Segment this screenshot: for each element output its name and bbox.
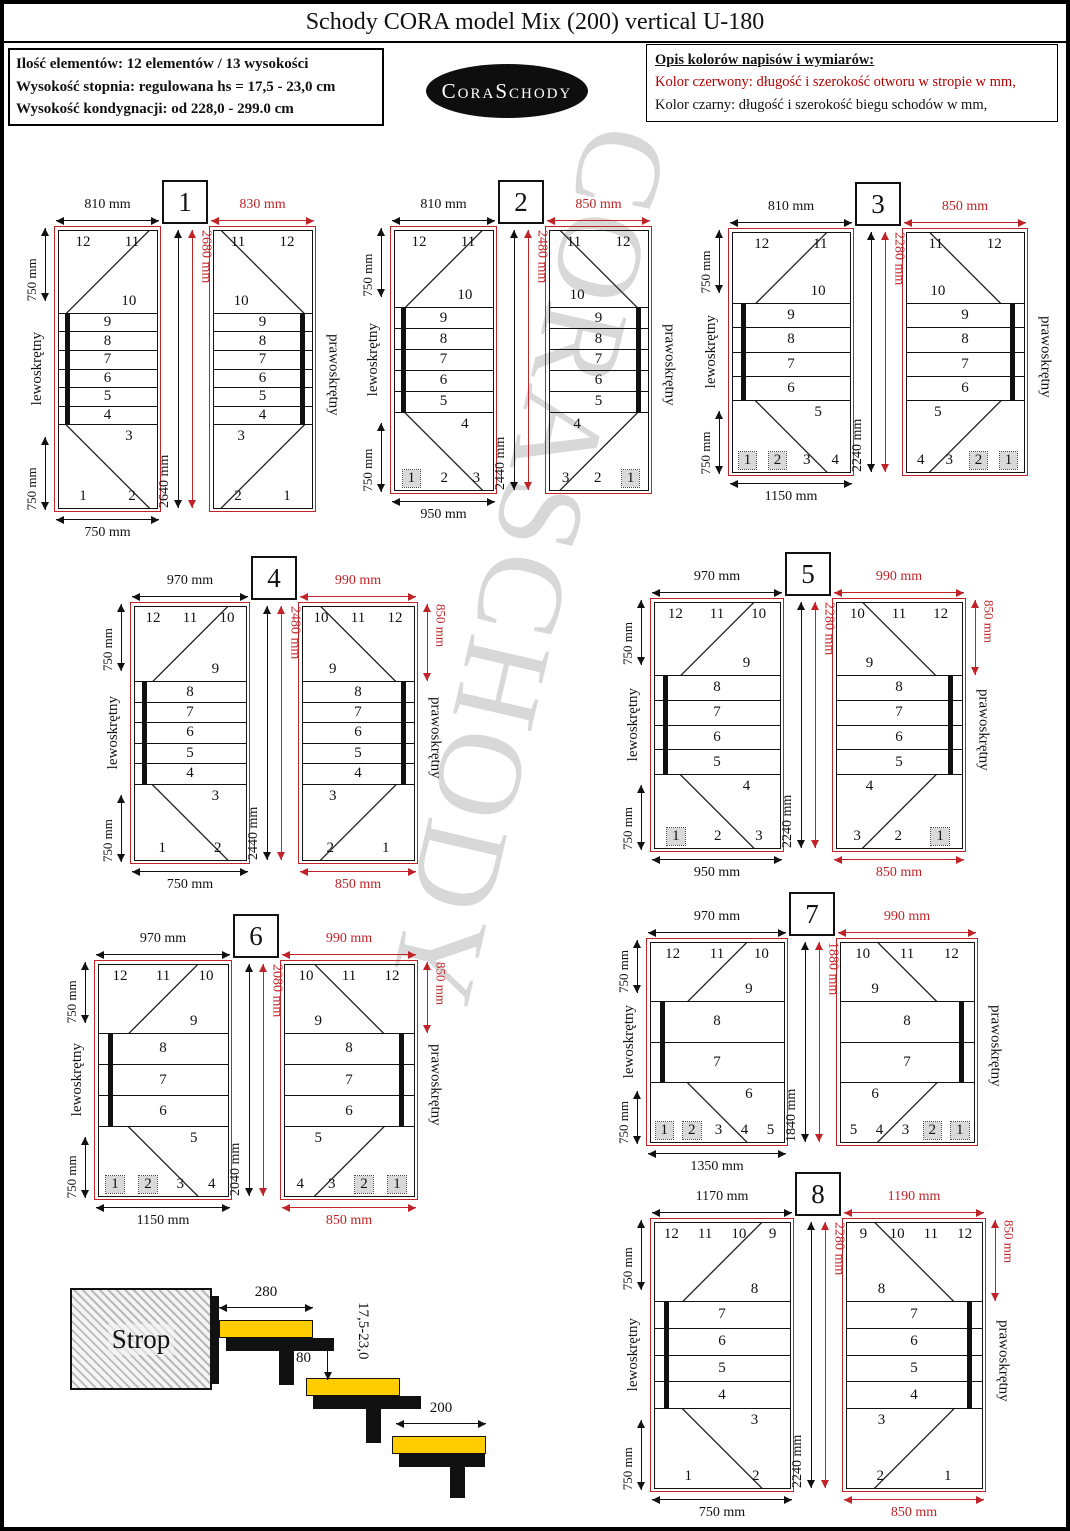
- dim-opening-width-red: 850 mm: [545, 180, 652, 226]
- step-cell: 4: [827, 452, 843, 469]
- dim-flight-length-label: 2440 mm: [246, 606, 262, 860]
- winder-zone-top: 1211109: [135, 607, 246, 683]
- winder-top-sub: 10: [550, 287, 648, 304]
- label-lewoskretny: lewoskrętny: [621, 1005, 638, 1078]
- right-edge-labels: 850 mm prawoskrętny: [418, 602, 452, 864]
- plan-right-flight: 1011129 87 654321: [840, 942, 975, 1143]
- step-cell: 2: [683, 1122, 701, 1139]
- dim-riser-range-label: 17,5-23,0: [354, 1302, 371, 1360]
- winder-bottom-sub: 5: [907, 404, 1024, 421]
- step-cell: 12: [986, 236, 1002, 253]
- dim-opening-width-label: 990 mm: [282, 931, 416, 949]
- winder-top-numbers: 101112: [837, 606, 962, 623]
- step-cell: 4: [135, 763, 246, 783]
- dim-850-side-arrow: [422, 604, 433, 681]
- dim-750-top-arrow: [636, 600, 647, 665]
- dim-opening-length-arrow: [880, 232, 891, 472]
- stair-variant-panel: 970 mm 6 990 mm 750 mm lewoskrętny 750 m…: [60, 914, 452, 1236]
- step-cell: 10: [849, 606, 865, 623]
- plan-right-flight: 111210 987654 321: [213, 230, 313, 509]
- step-cell: 7: [59, 350, 157, 369]
- dim-flight-width-arrow: [132, 591, 248, 602]
- dim-flight-length-black: 2240 mm: [790, 1222, 817, 1488]
- winder-top-sub: 9: [135, 661, 246, 678]
- dim-opening-width-red: 990 mm: [280, 914, 418, 960]
- winder-bottom-numbers: 123: [655, 828, 780, 845]
- center-dimensions: 2640 mm 2680 mm: [161, 226, 209, 512]
- winder-bottom-numbers: 12: [655, 1468, 790, 1485]
- dim-opening-length-arrow: [820, 1222, 831, 1488]
- dim-750-bottom: 750 mm: [616, 1091, 643, 1144]
- dim-opening-width-red: 830 mm: [209, 180, 316, 226]
- step-cell: 5: [846, 1122, 862, 1139]
- step-cell: 8: [303, 682, 414, 701]
- step-cell: 10: [751, 606, 767, 623]
- dim-750-top-label: 750 mm: [698, 230, 714, 293]
- winder-zone-top: 1011129: [841, 943, 974, 1003]
- winder-top-numbers: 101112: [841, 946, 974, 963]
- step-cell: 9: [739, 655, 755, 672]
- winder-zone-bottom: 654321: [841, 1082, 974, 1142]
- step-cell: 5: [59, 387, 157, 406]
- winder-zone-top: 12111098: [655, 1223, 790, 1303]
- dim-850-side-red: 850 mm: [422, 962, 449, 1033]
- straight-run: 98765: [550, 308, 648, 412]
- plan-right-turning: 1011129 87 654321: [836, 938, 978, 1146]
- dim-flight-width-arrow: [652, 587, 782, 598]
- step-cell: 8: [550, 328, 648, 349]
- step-cell: 2: [769, 452, 787, 469]
- dim-opening-width-arrow: [844, 1207, 984, 1218]
- plan-left-turning: 12111098 7654 312: [650, 1218, 794, 1492]
- step-cell: 9: [59, 314, 157, 332]
- dim-bottom-width-label: 1150 mm: [730, 489, 852, 507]
- dim-bottom-width-black: 1150 mm: [94, 1200, 232, 1236]
- step-cell: 6: [285, 1095, 414, 1126]
- dim-750-bottom: 750 mm: [620, 785, 647, 850]
- dim-bottom-width-black: 1150 mm: [728, 476, 854, 512]
- dim-opening-width-red: 990 mm: [832, 552, 966, 598]
- dim-850-side-label: 850 mm: [433, 604, 449, 681]
- variant-number: 6: [233, 914, 279, 958]
- winder-bottom-numbers: 12: [59, 488, 157, 505]
- winder-top-numbers: 1112: [550, 234, 648, 251]
- straight-run: 876: [285, 1034, 414, 1126]
- dim-750-top-label: 750 mm: [100, 604, 116, 671]
- dim-850-side-label: 850 mm: [433, 962, 449, 1033]
- dim-opening-width-arrow: [834, 587, 964, 598]
- step-cell: 2: [924, 1122, 942, 1139]
- step-cell: 8: [837, 676, 962, 700]
- step-cell: 10: [753, 946, 769, 963]
- right-edge-labels: 850 mm prawoskrętny: [966, 598, 1000, 852]
- step-cell: 5: [847, 1355, 982, 1382]
- dim-bottom-width-black: 750 mm: [54, 512, 161, 548]
- winder-top-sub: 10: [214, 293, 312, 310]
- dim-flight-length-label: 2040 mm: [228, 964, 244, 1196]
- dim-80-line: [322, 1342, 333, 1380]
- dim-opening-width-red: 1190 mm: [842, 1172, 986, 1218]
- dim-bottom-width-black: 950 mm: [650, 852, 784, 888]
- dim-bottom-width-red: 850 mm: [842, 1492, 986, 1528]
- center-dimensions: 2240 mm 2280 mm: [794, 1218, 842, 1492]
- dim-750-top-arrow: [376, 228, 387, 297]
- step-cell: 8: [907, 327, 1024, 351]
- dim-750-bottom-label: 750 mm: [620, 1420, 636, 1490]
- dim-flight-width-label: 810 mm: [56, 197, 159, 215]
- dim-750-bottom: 750 mm: [64, 1137, 91, 1198]
- dim-flight-width-black: 970 mm: [646, 892, 788, 938]
- tread-2: [306, 1378, 400, 1396]
- dim-flight-length-black: 2640 mm: [157, 230, 184, 508]
- dim-flight-width-black: 810 mm: [54, 180, 161, 226]
- dim-bottom-red-label: 850 mm: [300, 877, 416, 895]
- dim-flight-length-black: 2240 mm: [850, 232, 877, 472]
- plan-right-flight: 1011129 876 54321: [284, 964, 415, 1197]
- step-cell: 12: [665, 946, 681, 963]
- plan-left-turning: 121110 9876 51234: [728, 228, 854, 476]
- dim-850-side-label: 850 mm: [1001, 1220, 1017, 1301]
- plan-left-flight: 12111098 7654 312: [654, 1222, 791, 1489]
- left-edge-labels: 750 mm lewoskrętny 750 mm: [616, 598, 650, 852]
- winder-zone-bottom: 612345: [651, 1082, 784, 1142]
- winder-top-numbers: 121110: [655, 606, 780, 623]
- plan-right-turning: 1011129 8765 4321: [832, 598, 966, 852]
- dim-bottom-width-black: 950 mm: [390, 494, 497, 530]
- step-cell: 12: [279, 234, 295, 251]
- label-prawoskretny: prawoskrętny: [427, 697, 444, 779]
- step-cell: 3: [468, 470, 484, 487]
- left-edge-labels: 750 mm lewoskrętny 750 mm: [96, 602, 130, 864]
- plan-right-turning: 111210 987654 321: [209, 226, 316, 512]
- step-cell: 10: [930, 283, 946, 300]
- step-cell: 8: [651, 1002, 784, 1041]
- dim-bottom-width-arrow: [652, 854, 782, 865]
- dim-bottom-red-arrow: [834, 854, 964, 865]
- dim-750-bottom-label: 750 mm: [616, 1091, 632, 1144]
- plan-right-turning: 1011129 876 54321: [280, 960, 418, 1200]
- winder-bottom-sub: 3: [847, 1412, 982, 1429]
- dim-opening-width-arrow: [904, 217, 1026, 228]
- step-cell: 6: [733, 376, 850, 400]
- step-cell: 5: [655, 1355, 790, 1382]
- straight-run: 987654: [59, 314, 157, 425]
- step-cell: 3: [941, 452, 957, 469]
- winder-top-numbers: 101112: [303, 610, 414, 627]
- dim-bottom-width-arrow: [56, 514, 159, 525]
- winder-bottom-numbers: 4321: [907, 452, 1024, 469]
- step-cell: 1: [154, 840, 170, 857]
- plan-left-flight: 121110 9876 51234: [732, 232, 851, 473]
- dim-750-top: 750 mm: [360, 228, 387, 297]
- winder-top-numbers: 1112: [214, 234, 312, 251]
- step-cell: 9: [733, 304, 850, 327]
- right-edge-labels: prawoskrętny: [978, 938, 1012, 1146]
- dim-850-side-red: 850 mm: [970, 600, 997, 675]
- winder-bottom-numbers: 21: [303, 840, 414, 857]
- step-cell: 1: [931, 828, 949, 845]
- dim-flight-length-arrow: [509, 230, 520, 490]
- dim-opening-width-arrow: [300, 591, 416, 602]
- title-divider: [4, 41, 1066, 43]
- winder-zone-bottom: 54321: [907, 400, 1024, 472]
- dim-flight-width-label: 970 mm: [132, 573, 248, 591]
- dim-750-top-arrow: [632, 940, 643, 993]
- step-cell: 9: [214, 314, 312, 332]
- step-cell: 6: [214, 369, 312, 388]
- step-cell: 5: [186, 1130, 202, 1147]
- stair-variant-panel: 970 mm 5 990 mm 750 mm lewoskrętny 750 m…: [616, 552, 1000, 888]
- step-cell: 8: [135, 682, 246, 701]
- step-cell: 1: [951, 1122, 969, 1139]
- winder-zone-bottom: 4321: [550, 412, 648, 490]
- stair-variant-panel: 970 mm 4 990 mm 750 mm lewoskrętny 750 m…: [96, 556, 452, 900]
- cora-schody-logo: CoraSchody: [426, 64, 588, 118]
- center-dimensions: 2040 mm 2080 mm: [232, 960, 280, 1200]
- step-cell: 3: [898, 1122, 914, 1139]
- dim-opening-length-arrow: [810, 602, 821, 848]
- winder-bottom-numbers: 54321: [841, 1122, 974, 1139]
- dim-750-bottom-arrow: [636, 1420, 647, 1490]
- plan-left-flight: 1211109 876 51234: [98, 964, 229, 1197]
- dim-flight-width-arrow: [730, 217, 852, 228]
- winder-zone-top: 1211109: [651, 943, 784, 1003]
- winder-top-numbers: 1211109: [655, 1226, 790, 1243]
- step-cell: 10: [569, 287, 585, 304]
- plan-right-turning: 1011129 87654 321: [298, 602, 418, 864]
- right-edge-labels: prawoskrętny: [1028, 228, 1062, 476]
- dim-tread-depth-200: 200: [396, 1400, 486, 1429]
- step-cell: 10: [219, 610, 235, 627]
- plan-left-flight: 121110 987654 312: [58, 230, 158, 509]
- step-cell: 4: [913, 452, 929, 469]
- step-cell: 11: [341, 968, 357, 985]
- legend-heading: Opis kolorów napisów i wymiarów:: [655, 49, 1049, 71]
- legend-red-meaning: Kolor czerwony: długość i szerokość otwo…: [655, 71, 1049, 93]
- dim-opening-width-arrow: [547, 215, 650, 226]
- dim-flight-width-black: 810 mm: [728, 182, 854, 228]
- winder-zone-top: 121110: [395, 231, 493, 309]
- step-cell: 3: [711, 1122, 727, 1139]
- dim-flight-length-arrow: [806, 1222, 817, 1488]
- step-cell: 9: [862, 655, 878, 672]
- dim-opening-width-label: 990 mm: [300, 573, 416, 591]
- step-cell: 2: [322, 840, 338, 857]
- sheet: Schody CORA model Mix (200) vertical U-1…: [0, 0, 1070, 1531]
- winder-bottom-numbers: 4321: [285, 1176, 414, 1193]
- winder-zone-bottom: 312: [59, 424, 157, 507]
- winder-top-sub: 10: [733, 283, 850, 300]
- dim-opening-length-arrow: [276, 606, 287, 860]
- step-cell: 7: [733, 352, 850, 376]
- step-cell: 10: [233, 293, 249, 310]
- step-cell: 11: [891, 606, 907, 623]
- logo-text: CoraSchody: [442, 79, 573, 104]
- winder-top-sub: 9: [99, 1013, 228, 1030]
- label-prawoskretny: prawoskrętny: [1037, 316, 1054, 398]
- dim-flight-length-arrow: [800, 942, 811, 1142]
- plan-left-turning: 1211109 8765 4123: [650, 598, 784, 852]
- winder-top-numbers: 121110: [99, 968, 228, 985]
- winder-top-numbers: 121110: [651, 946, 784, 963]
- dim-750-top: 750 mm: [100, 604, 127, 671]
- step-cell: 6: [135, 722, 246, 742]
- legend-box: Opis kolorów napisów i wymiarów: Kolor c…: [646, 44, 1058, 122]
- step-cell: 7: [847, 1302, 982, 1328]
- riser-post-1: [279, 1338, 294, 1385]
- step-cell: 6: [741, 1086, 757, 1103]
- step-cell: 1: [739, 452, 757, 469]
- dim-opening-length-arrow: [187, 230, 198, 508]
- step-cell: 4: [292, 1176, 308, 1193]
- dim-200-label: 200: [396, 1400, 486, 1418]
- plan-left-turning: 1211109 87654 312: [130, 602, 250, 864]
- step-cell: 6: [395, 370, 493, 391]
- step-cell: 6: [837, 725, 962, 750]
- dim-750-top-arrow: [40, 228, 51, 301]
- winder-bottom-sub: 3: [59, 428, 157, 445]
- winder-bottom-sub: 4: [395, 416, 493, 433]
- winder-zone-bottom: 321: [303, 784, 414, 860]
- stair-variant-panel: 1170 mm 8 1190 mm 750 mm lewoskrętny 750…: [616, 1172, 1020, 1528]
- step-cell: 11: [155, 968, 171, 985]
- dim-750-bottom-label: 750 mm: [620, 785, 636, 850]
- right-edge-labels: 850 mm prawoskrętny: [986, 1218, 1020, 1492]
- dim-750-top: 750 mm: [24, 228, 51, 301]
- dim-tread-depth-280: 280: [219, 1284, 313, 1313]
- winder-bottom-sub: 4: [550, 416, 648, 433]
- winder-top-sub: 10: [59, 293, 157, 310]
- page-title: Schody CORA model Mix (200) vertical U-1…: [4, 9, 1066, 36]
- dim-opening-length-arrow: [258, 964, 269, 1196]
- variant-number: 3: [855, 182, 901, 226]
- step-cell: 3: [751, 828, 767, 845]
- winder-bottom-sub: 3: [214, 428, 312, 445]
- step-cell: 5: [214, 387, 312, 406]
- step-cell: 11: [709, 606, 725, 623]
- step-cell: 10: [121, 293, 137, 310]
- step-cell: 2: [436, 470, 452, 487]
- step-cell: 10: [198, 968, 214, 985]
- straight-run: 8765: [655, 676, 780, 774]
- step-cell: 7: [303, 702, 414, 722]
- step-cell: 6: [655, 725, 780, 750]
- step-cell: 8: [214, 331, 312, 350]
- step-cell: 10: [810, 283, 826, 300]
- dim-750-bottom-arrow: [376, 423, 387, 492]
- winder-top-numbers: 1112: [907, 236, 1024, 253]
- dim-80-label: 80: [296, 1350, 311, 1367]
- step-cell: 9: [867, 981, 883, 998]
- winder-top-numbers: 121110: [135, 610, 246, 627]
- winder-top-sub: 10: [907, 283, 1024, 300]
- step-cell: 8: [395, 328, 493, 349]
- step-cell: 12: [957, 1226, 973, 1243]
- step-cell: 11: [697, 1226, 713, 1243]
- step-cell: 6: [867, 1086, 883, 1103]
- dim-opening-width-arrow: [282, 949, 416, 960]
- dim-bottom-width-red: 850 mm: [280, 1200, 418, 1236]
- step-cell: 3: [325, 788, 341, 805]
- dim-opening-width-label: 1190 mm: [844, 1189, 984, 1207]
- step-cell: 9: [310, 1013, 326, 1030]
- winder-bottom-sub: 3: [303, 788, 414, 805]
- step-cell: 7: [907, 352, 1024, 376]
- step-cell: 12: [943, 946, 959, 963]
- step-cell: 8: [99, 1034, 228, 1064]
- step-cell: 10: [298, 968, 314, 985]
- step-cell: 4: [737, 1122, 753, 1139]
- step-cell: 3: [207, 788, 223, 805]
- step-cell: 5: [655, 749, 780, 774]
- step-cell: 1: [403, 470, 421, 487]
- step-cell: 2: [890, 828, 906, 845]
- step-cell: 12: [933, 606, 949, 623]
- winder-zone-top: 121110: [733, 233, 850, 305]
- plan-right-flight: 91011128 7654 321: [846, 1222, 983, 1489]
- plan-left-flight: 1211109 87 612345: [650, 942, 785, 1143]
- winder-top-sub: 9: [651, 981, 784, 998]
- step-cell: 5: [810, 404, 826, 421]
- label-lewoskretny: lewoskrętny: [703, 315, 720, 388]
- right-edge-labels: prawoskrętny: [652, 226, 686, 494]
- step-cell: 2: [139, 1176, 157, 1193]
- dim-bottom-width-black: 750 mm: [650, 1492, 794, 1528]
- dim-850-side-red: 850 mm: [990, 1220, 1017, 1301]
- dim-750-top: 750 mm: [620, 1220, 647, 1290]
- dim-flight-width-black: 970 mm: [94, 914, 232, 960]
- straight-run: 98765: [395, 308, 493, 412]
- step-cell: 5: [303, 743, 414, 763]
- step-cell: 5: [837, 749, 962, 774]
- dim-bottom-width-label: 750 mm: [132, 877, 248, 895]
- variant-number: 7: [789, 892, 835, 936]
- dim-flight-width-label: 970 mm: [96, 931, 230, 949]
- dim-flight-length-label: 2240 mm: [790, 1222, 806, 1488]
- winder-zone-bottom: 321: [214, 424, 312, 507]
- dim-bottom-width-arrow: [648, 1148, 786, 1159]
- plan-right-turning: 111210 98765 4321: [545, 226, 652, 494]
- dim-flight-width-black: 970 mm: [650, 552, 784, 598]
- dim-750-bottom-label: 750 mm: [360, 423, 376, 492]
- winder-top-sub: 8: [655, 1281, 790, 1298]
- plan-left-flight: 1211109 87654 312: [134, 606, 247, 861]
- tread-3-support: [399, 1454, 485, 1467]
- step-cell: 11: [709, 946, 725, 963]
- step-cell: 1: [1000, 452, 1018, 469]
- step-cell: 3: [799, 452, 815, 469]
- plan-left-turning: 121110 987654 312: [54, 226, 161, 512]
- winder-zone-bottom: 51234: [733, 400, 850, 472]
- dim-opening-width-red: 990 mm: [298, 556, 418, 602]
- dim-750-top-label: 750 mm: [24, 228, 40, 301]
- dim-flight-length-label: 2240 mm: [850, 232, 866, 472]
- step-cell: 1: [940, 1468, 956, 1485]
- step-cell: 1: [378, 840, 394, 857]
- step-cell: 7: [841, 1042, 974, 1082]
- stair-variant-panel: 970 mm 7 990 mm 750 mm lewoskrętny 750 m…: [612, 892, 1012, 1182]
- dim-bottom-width-label: 950 mm: [392, 507, 495, 525]
- step-cell: 4: [569, 416, 585, 433]
- step-cell: 11: [812, 236, 828, 253]
- step-cell: 11: [124, 234, 140, 251]
- step-cell: 1: [106, 1176, 124, 1193]
- variant-number: 1: [162, 180, 208, 224]
- strop-trimmer-bar: [212, 1296, 219, 1384]
- label-lewoskretny: lewoskrętny: [69, 1043, 86, 1116]
- label-lewoskretny: lewoskrętny: [29, 332, 46, 405]
- winder-top-numbers: 1211: [733, 236, 850, 253]
